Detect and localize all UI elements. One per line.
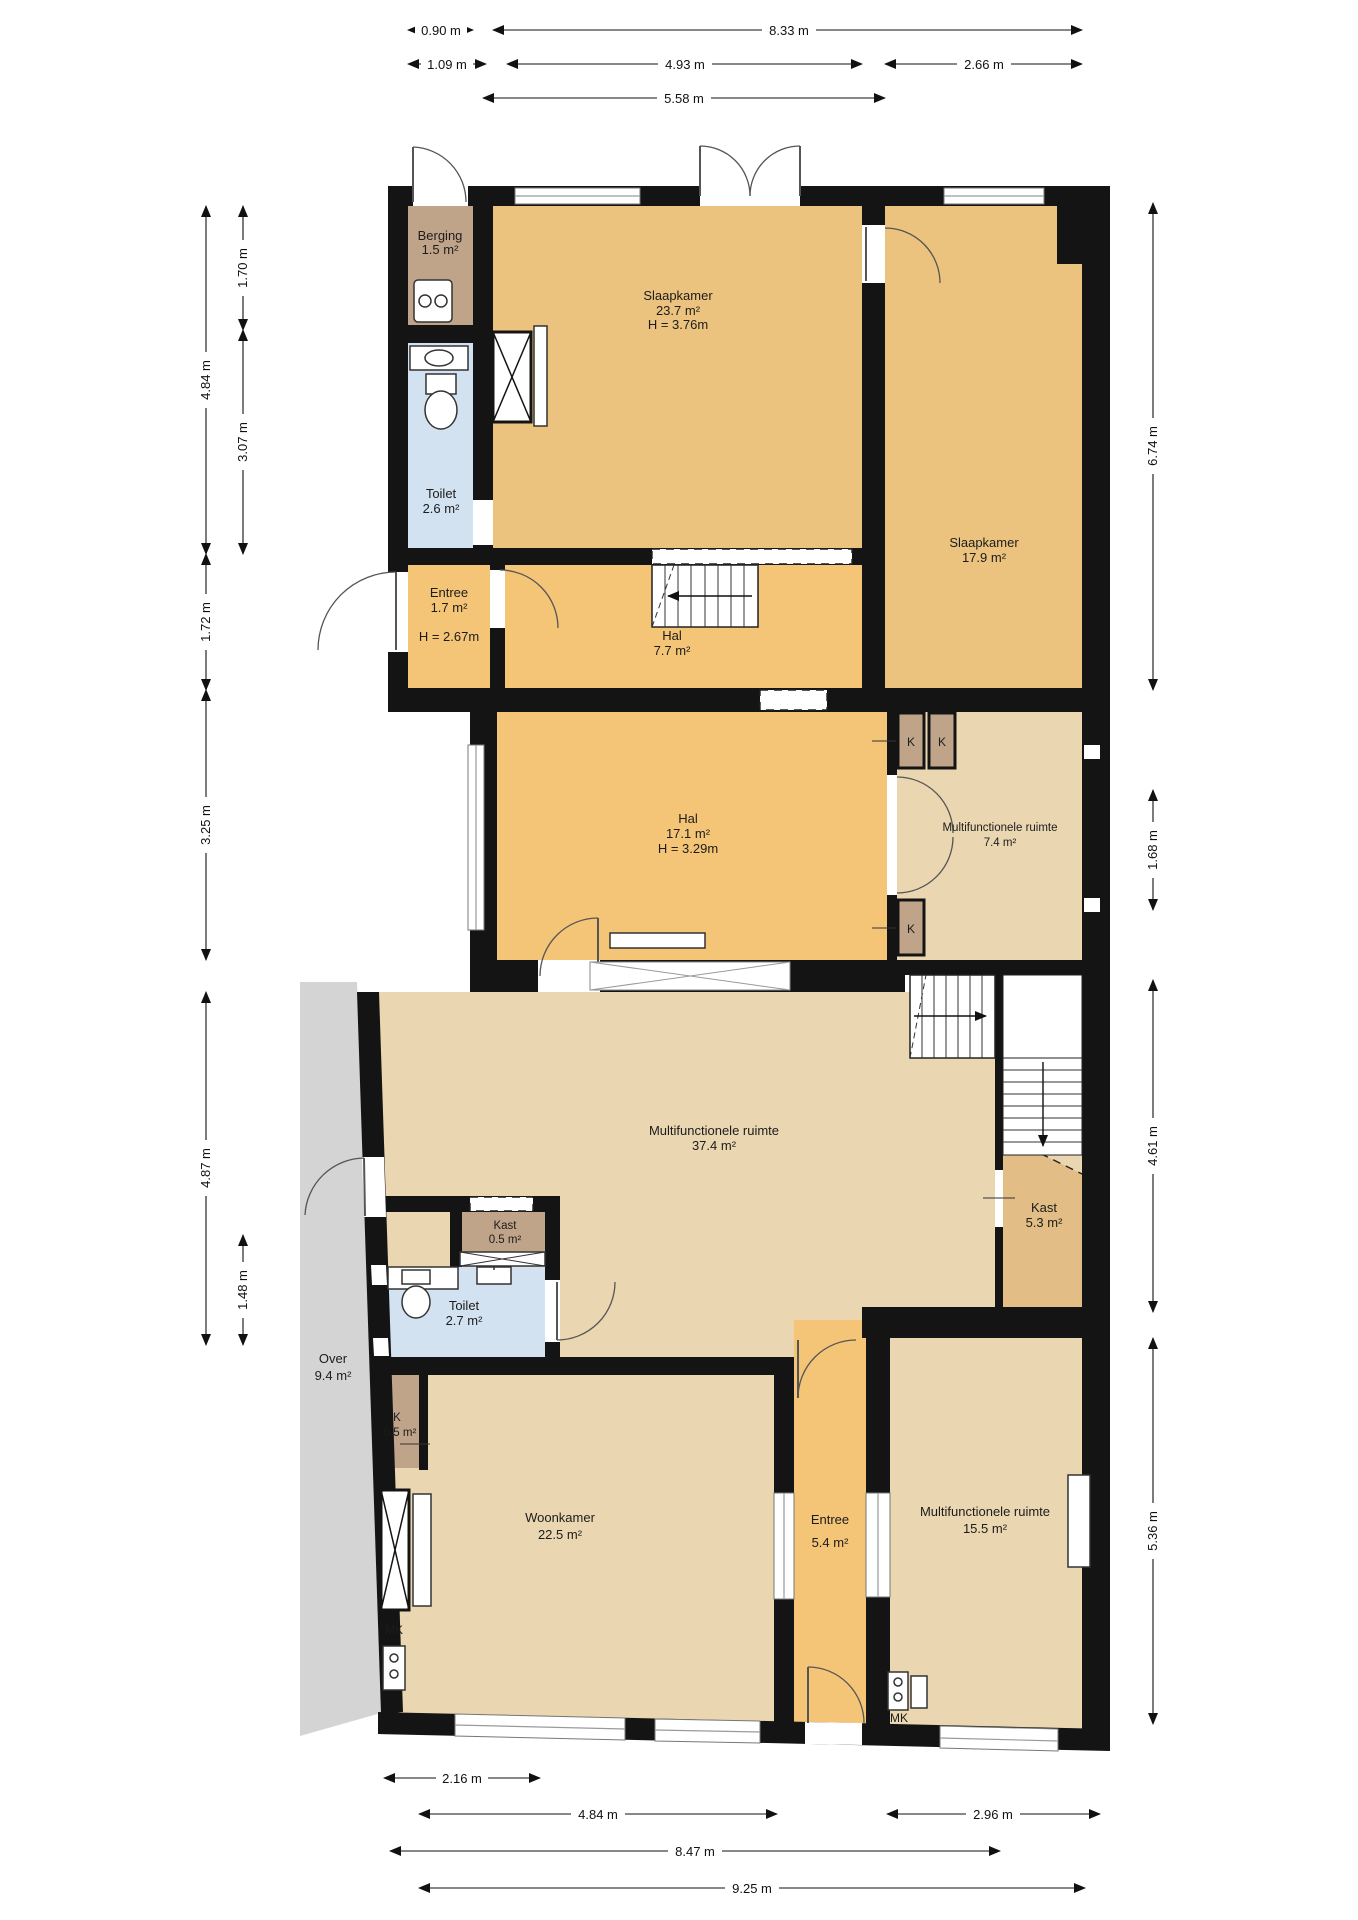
label-berging: Berging — [418, 228, 463, 243]
svg-text:22.5 m²: 22.5 m² — [538, 1527, 583, 1542]
window-top-left — [515, 188, 640, 204]
niche-multi-klein-2 — [1084, 898, 1100, 912]
svg-text:2.16 m: 2.16 m — [442, 1771, 482, 1786]
label-multi-onder: Multifunctionele ruimte — [920, 1504, 1050, 1519]
label-k-beneden: K — [393, 1412, 401, 1424]
svg-text:0.90 m: 0.90 m — [421, 23, 461, 38]
washer-icon — [414, 280, 452, 322]
dim-left-325: 3.25 m — [197, 690, 214, 960]
svg-text:7.4 m²: 7.4 m² — [984, 837, 1017, 849]
dim-top-833: 8.33 m — [493, 22, 1082, 38]
label-over: Over — [319, 1351, 348, 1366]
svg-text:3.25 m: 3.25 m — [198, 805, 213, 845]
dim-left-172: 1.72 m — [197, 554, 214, 690]
dim-left-487: 4.87 m — [197, 992, 214, 1345]
stairs-hal-klein — [652, 565, 758, 627]
room-slaapkamer-groot — [493, 206, 862, 548]
dim-top-558: 5.58 m — [483, 90, 885, 106]
room-woonkamer — [392, 1375, 774, 1722]
svg-text:H = 3.76m: H = 3.76m — [648, 317, 708, 332]
window-tick-left-2 — [373, 1338, 389, 1356]
open-passage-slaapkamer-hal — [652, 549, 852, 564]
shaft-icon — [493, 326, 547, 426]
svg-text:4.84 m: 4.84 m — [198, 360, 213, 400]
label-k1: K — [907, 735, 915, 749]
stairs-landing — [1003, 975, 1082, 1058]
svg-text:23.7 m²: 23.7 m² — [656, 303, 701, 318]
floor-plan-canvas: Berging 1.5 m² Toilet 2.6 m² Slaapkamer … — [0, 0, 1358, 1920]
svg-text:9.4 m²: 9.4 m² — [315, 1368, 353, 1383]
svg-text:6.74 m: 6.74 m — [1145, 426, 1160, 466]
window-entree-left — [774, 1493, 794, 1599]
label-kast-groot: Kast — [1031, 1200, 1057, 1215]
svg-text:3.07 m: 3.07 m — [235, 422, 250, 462]
dim-left-307: 3.07 m — [234, 330, 251, 554]
stairs-down-run — [1003, 1058, 1082, 1155]
sill-hal-groot — [610, 933, 705, 948]
svg-text:5.3 m²: 5.3 m² — [1026, 1215, 1064, 1230]
niche-multi-klein-1 — [1084, 745, 1100, 759]
svg-text:2.96 m: 2.96 m — [973, 1807, 1013, 1822]
svg-text:4.93 m: 4.93 m — [665, 57, 705, 72]
svg-text:4.84 m: 4.84 m — [578, 1807, 618, 1822]
window-hal-left — [468, 745, 484, 930]
svg-text:4.87 m: 4.87 m — [198, 1148, 213, 1188]
window-top-right — [944, 188, 1044, 204]
label-entree-beneden: Entree — [811, 1512, 849, 1527]
dim-bottom-925: 9.25 m — [419, 1880, 1085, 1896]
svg-text:5.58 m: 5.58 m — [664, 91, 704, 106]
svg-text:17.9 m²: 17.9 m² — [962, 550, 1007, 565]
svg-text:H = 2.67m: H = 2.67m — [419, 629, 479, 644]
svg-text:1.5 m²: 1.5 m² — [422, 242, 460, 257]
fold-bed-icon — [460, 1252, 545, 1266]
door-entree-front — [318, 572, 396, 650]
dim-top-266: 2.66 m — [885, 56, 1082, 72]
svg-text:1.48 m: 1.48 m — [235, 1270, 250, 1310]
meter-right-icon — [888, 1672, 927, 1710]
label-slaapkamer-klein: Slaapkamer — [949, 535, 1019, 550]
open-passage-hal — [760, 690, 827, 710]
dim-right-461: 4.61 m — [1144, 980, 1161, 1312]
svg-text:4.61 m: 4.61 m — [1145, 1126, 1160, 1166]
svg-text:1.09 m: 1.09 m — [427, 57, 467, 72]
label-woonkamer: Woonkamer — [525, 1510, 596, 1525]
label-slaapkamer-groot: Slaapkamer — [643, 288, 713, 303]
window-tick-left-1 — [371, 1265, 387, 1285]
svg-text:5.4 m²: 5.4 m² — [812, 1535, 850, 1550]
floor-plan-svg: Berging 1.5 m² Toilet 2.6 m² Slaapkamer … — [0, 0, 1358, 1920]
open-passage-kast — [470, 1197, 533, 1211]
svg-text:2.7 m²: 2.7 m² — [446, 1313, 484, 1328]
svg-text:1.70 m: 1.70 m — [235, 248, 250, 288]
stairs-up-run — [910, 975, 995, 1058]
dim-bottom-216: 2.16 m — [384, 1770, 540, 1786]
label-kast-klein: Kast — [493, 1220, 517, 1232]
dim-top-090: 0.90 m — [408, 22, 473, 38]
label-multi-groot: Multifunctionele ruimte — [649, 1123, 779, 1138]
label-mk-left: MK — [385, 1623, 403, 1637]
svg-text:5.36 m: 5.36 m — [1145, 1511, 1160, 1551]
glass-partition — [590, 962, 790, 990]
label-hal-klein: Hal — [662, 628, 682, 643]
svg-text:0.5 m²: 0.5 m² — [384, 1427, 417, 1439]
label-k3: K — [907, 922, 915, 936]
dim-top-109: 1.09 m — [408, 56, 486, 72]
dim-bottom-296: 2.96 m — [887, 1806, 1100, 1822]
svg-text:37.4 m²: 37.4 m² — [692, 1138, 737, 1153]
dim-left-170: 1.70 m — [234, 206, 251, 330]
dim-left-484: 4.84 m — [197, 206, 214, 554]
svg-text:8.47 m: 8.47 m — [675, 1844, 715, 1859]
svg-text:7.7 m²: 7.7 m² — [654, 643, 692, 658]
wc-boven-icon — [425, 374, 457, 429]
lift-icon — [381, 1490, 431, 1610]
dim-top-493: 4.93 m — [507, 56, 862, 72]
svg-text:17.1 m²: 17.1 m² — [666, 826, 711, 841]
svg-text:0.5 m²: 0.5 m² — [489, 1234, 522, 1246]
svg-text:2.66 m: 2.66 m — [964, 57, 1004, 72]
room-kast-klein — [460, 1212, 545, 1252]
room-entree-boven — [408, 565, 490, 688]
dim-bottom-484: 4.84 m — [419, 1806, 777, 1822]
meter-left-icon — [383, 1646, 405, 1690]
sink-toilet-boven-icon — [410, 346, 468, 370]
room-slaapkamer-klein — [885, 206, 1082, 688]
svg-text:1.7 m²: 1.7 m² — [431, 600, 469, 615]
label-mk-right: MK — [890, 1711, 908, 1725]
svg-text:1.68 m: 1.68 m — [1145, 830, 1160, 870]
window-entree-right — [866, 1493, 890, 1597]
label-toilet-beneden: Toilet — [449, 1298, 480, 1313]
svg-text:2.6 m²: 2.6 m² — [423, 501, 461, 516]
label-entree-boven: Entree — [430, 585, 468, 600]
svg-text:15.5 m²: 15.5 m² — [963, 1521, 1008, 1536]
svg-text:8.33 m: 8.33 m — [769, 23, 809, 38]
dim-bottom-847: 8.47 m — [390, 1843, 1000, 1859]
label-hal-groot: Hal — [678, 811, 698, 826]
label-toilet-boven: Toilet — [426, 486, 457, 501]
svg-text:H = 3.29m: H = 3.29m — [658, 841, 718, 856]
dim-right-674: 6.74 m — [1144, 203, 1161, 690]
dim-right-168: 1.68 m — [1144, 790, 1161, 910]
label-multi-klein: Multifunctionele ruimte — [942, 822, 1057, 834]
dim-right-536: 5.36 m — [1144, 1338, 1161, 1724]
svg-text:1.72 m: 1.72 m — [198, 602, 213, 642]
dim-left-148: 1.48 m — [234, 1235, 251, 1345]
svg-text:9.25 m: 9.25 m — [732, 1881, 772, 1896]
label-k2: K — [938, 735, 946, 749]
radiator-multi-onder — [1068, 1475, 1090, 1567]
